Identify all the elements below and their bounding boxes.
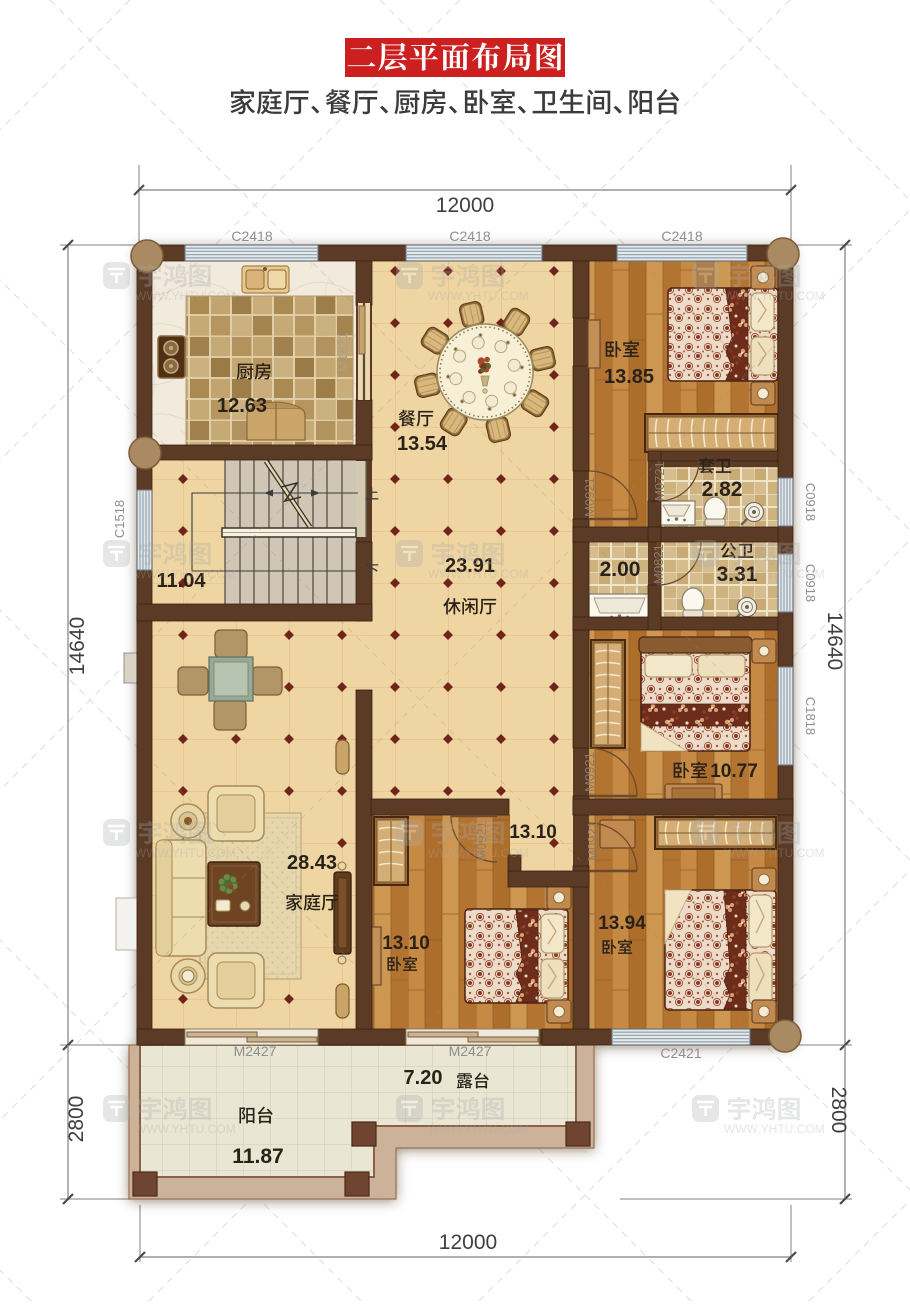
svg-text:C2421: C2421 (660, 1045, 701, 1061)
svg-text:C1518: C1518 (112, 500, 127, 538)
svg-text:C0918: C0918 (803, 483, 818, 521)
svg-text:2.00: 2.00 (600, 558, 641, 581)
svg-text:M0921: M0921 (582, 477, 597, 517)
svg-text:10.77: 10.77 (710, 761, 758, 782)
svg-text:M0921: M0921 (585, 821, 600, 861)
svg-text:7.20: 7.20 (404, 1067, 443, 1089)
svg-text:M0821: M0821 (651, 544, 666, 584)
svg-text:13.10: 13.10 (509, 822, 557, 843)
svg-text:13.94: 13.94 (598, 913, 646, 934)
svg-text:C2418: C2418 (449, 228, 490, 244)
svg-text:C2418: C2418 (231, 228, 272, 244)
svg-text:2800: 2800 (827, 1087, 850, 1134)
svg-text:2.82: 2.82 (702, 478, 743, 501)
svg-text:2800: 2800 (65, 1096, 88, 1143)
svg-text:12000: 12000 (436, 194, 494, 217)
svg-text:13.54: 13.54 (397, 433, 448, 455)
svg-text:13.10: 13.10 (382, 933, 430, 954)
svg-text:M0921: M0921 (582, 752, 597, 792)
svg-text:M1821: M1821 (335, 332, 350, 372)
svg-text:14640: 14640 (823, 612, 846, 670)
svg-text:14640: 14640 (66, 617, 89, 675)
svg-text:M0721: M0721 (652, 461, 667, 501)
svg-text:12000: 12000 (439, 1231, 497, 1254)
svg-text:M2427: M2427 (234, 1043, 277, 1059)
svg-text:C1818: C1818 (803, 697, 818, 735)
svg-text:C2418: C2418 (661, 228, 702, 244)
svg-text:12.63: 12.63 (217, 395, 267, 417)
svg-text:11.87: 11.87 (232, 1145, 283, 1168)
svg-text:M2427: M2427 (449, 1043, 492, 1059)
svg-text:13.85: 13.85 (604, 366, 654, 388)
svg-text:28.43: 28.43 (287, 852, 337, 874)
